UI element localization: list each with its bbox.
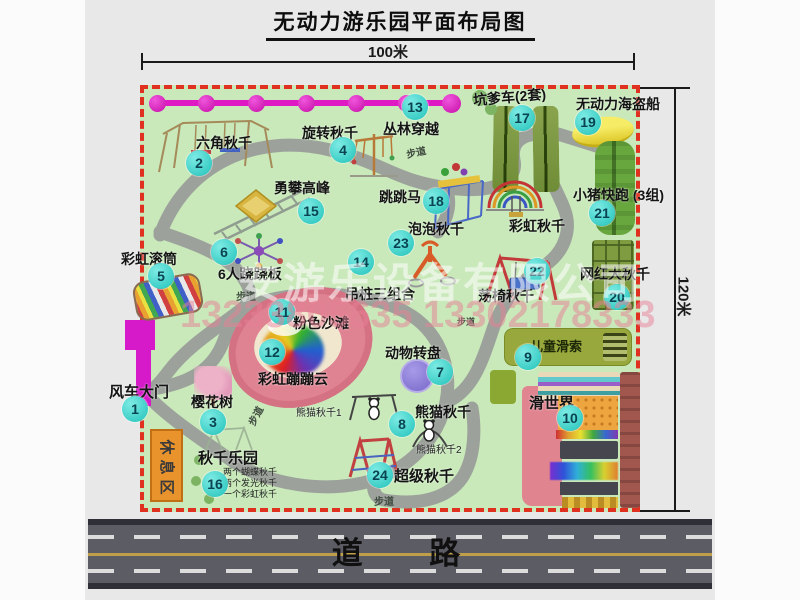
label-climbing-peak: 勇攀高峰: [274, 178, 330, 198]
badge-1: 1: [122, 396, 148, 422]
dimension-tick-right-top: [640, 87, 690, 89]
rest-area-label: 休息区: [157, 433, 178, 506]
label-swing-park: 秋千乐园: [198, 447, 258, 468]
label-jungle-crossing: 丛林穿越: [383, 119, 439, 139]
badge-5: 5: [148, 263, 174, 289]
dimension-tick-right-bottom: [640, 510, 690, 512]
dimension-tick-top-right: [633, 53, 635, 70]
slide-yellow-lane: [562, 497, 618, 508]
slide-dark-lane: [560, 482, 618, 495]
badge-3: 3: [200, 409, 226, 435]
label-bubble-swing: 泡泡秋千: [408, 219, 464, 239]
badge-10: 10: [557, 405, 583, 431]
jungle-crossing-bead: [198, 95, 215, 112]
badge-17: 17: [509, 105, 535, 131]
zipline-platform: [490, 370, 516, 404]
label-jumping-horse: 跳跳马: [379, 187, 421, 207]
dimension-label-height: 120米: [674, 267, 695, 327]
label-super-swing: 超级秋千: [394, 465, 454, 486]
badge-16: 16: [202, 471, 228, 497]
badge-6: 6: [211, 239, 237, 265]
slide-tower-wall: [620, 372, 640, 508]
jungle-crossing-bead: [248, 95, 265, 112]
page-title-text: 无动力游乐园平面布局图: [266, 6, 535, 41]
kart-track-strip: [532, 106, 559, 192]
badge-18: 18: [423, 188, 449, 214]
jungle-crossing-bead: [348, 95, 365, 112]
slide-world-zone: [518, 370, 642, 510]
swing-park-note: 两个发光秋千: [223, 478, 277, 489]
slide-rainbow-lane: [550, 462, 618, 480]
badge-8: 8: [389, 411, 415, 437]
label-hex-swing: 六角秋千: [196, 133, 252, 153]
slide-rainbow-strip: [556, 430, 618, 439]
label-piggy-run: 小猪快跑 (3组): [573, 185, 664, 205]
road: 道 路: [88, 519, 712, 589]
badge-13: 13: [402, 94, 428, 120]
dimension-label-width: 100米: [338, 41, 438, 62]
label-panda-swing: 熊猫秋千: [415, 402, 471, 422]
badge-21: 21: [589, 200, 615, 226]
badge-9: 9: [515, 344, 541, 370]
badge-24: 24: [367, 462, 393, 488]
dimension-tick-top-left: [141, 53, 143, 70]
swing-park-note: 一个彩虹秋千: [223, 489, 277, 500]
badge-15: 15: [298, 198, 324, 224]
badge-12: 12: [259, 339, 285, 365]
badge-2: 2: [186, 150, 212, 176]
park-layout-plan: 无动力游乐园平面布局图 100米 120米 步道 步道 步道 步道 步道 步道 …: [0, 0, 800, 600]
jungle-crossing-bead: [298, 95, 315, 112]
path-label: 步道: [374, 493, 394, 508]
page-title: 无动力游乐园平面布局图: [0, 6, 800, 41]
badge-19: 19: [575, 109, 601, 135]
zipline-tower-icon: [603, 333, 627, 361]
jungle-crossing-bead: [442, 94, 461, 113]
badge-4: 4: [330, 137, 356, 163]
watermark-phone: 13233805635 13302178333: [180, 294, 656, 337]
label-rainbow-cloud: 彩虹蹦蹦云: [258, 369, 328, 389]
road-label: 道 路: [88, 525, 712, 583]
slide-dark-lane: [560, 441, 618, 459]
label-rainbow-swing: 彩虹秋千: [509, 216, 565, 236]
jungle-crossing-bead: [149, 95, 166, 112]
badge-7: 7: [427, 359, 453, 385]
label-panda-swing-2: 熊猫秋千2: [416, 441, 462, 456]
swing-park-note: 两个蝴蝶秋千: [223, 467, 277, 478]
label-panda-swing-1: 熊猫秋千1: [296, 404, 342, 419]
windmill-gate-top: [125, 320, 155, 350]
rest-area-zone: 休息区: [150, 429, 183, 502]
